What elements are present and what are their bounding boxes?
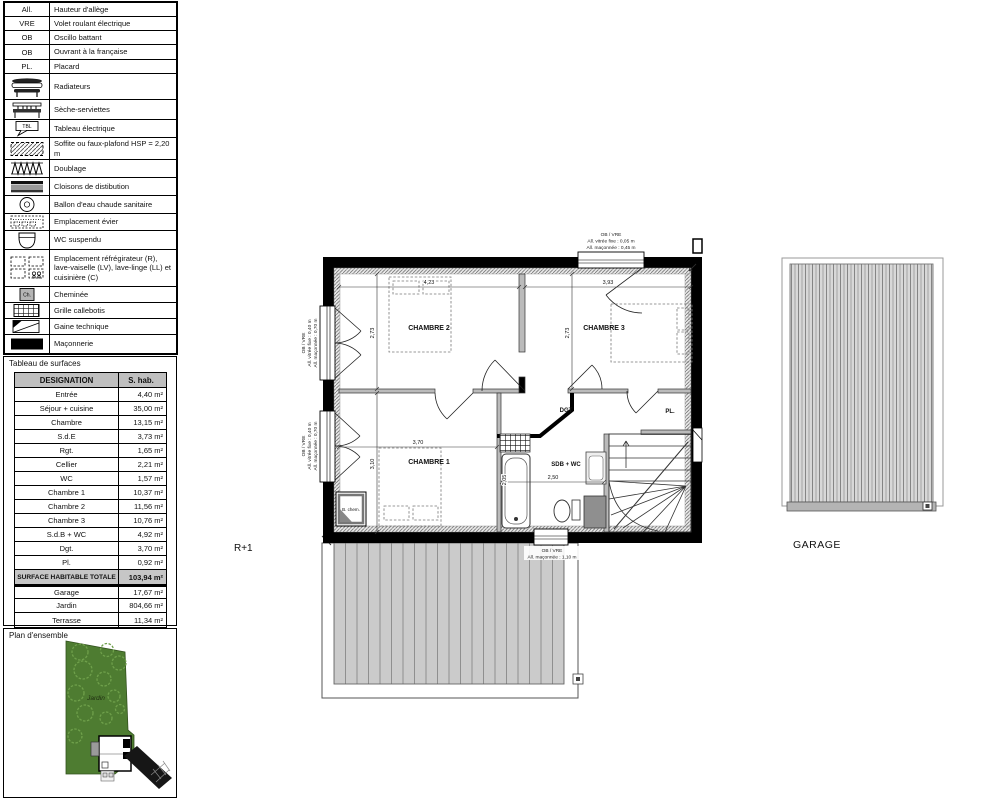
table-row: Séjour + cuisine35,00 m²: [15, 402, 166, 416]
legend-label: Oscillo battant: [50, 31, 176, 44]
svg-text:All. vitrée fixe : 0,40 m: All. vitrée fixe : 0,40 m: [307, 422, 313, 469]
legend-row: Maçonnerie: [5, 335, 176, 353]
legend-row: Ballon d'eau chaude sanitaire: [5, 196, 176, 214]
electrical-panel-icon: TBL: [8, 120, 46, 137]
dgt-thick-wall: [497, 393, 572, 436]
surface-table-panel: Tableau de surfaces DESIGNATIONS. hab. E…: [3, 356, 177, 626]
svg-text:3,10: 3,10: [370, 459, 376, 470]
site-terrace-mark: [103, 773, 107, 777]
svg-text:2,05: 2,05: [502, 475, 508, 486]
furniture-beds: [379, 277, 692, 526]
site-garage: [91, 742, 99, 756]
legend-abbr: PL.: [5, 60, 50, 73]
legend-label: Radiateurs: [50, 74, 176, 99]
legend-row: TBL Tableau électrique: [5, 120, 176, 138]
legend-row: Doublage: [5, 160, 176, 178]
room-label-dgt: DGT: [560, 408, 573, 414]
floor-grating: [500, 434, 530, 452]
table-row: Garage17,67 m²: [15, 585, 166, 599]
legend-row: Grille callebotis: [5, 303, 176, 319]
legend-row: VREVolet roulant électrique: [5, 17, 176, 31]
soffit-hatch-icon: [8, 140, 46, 158]
legend-label: Ballon d'eau chaude sanitaire: [50, 196, 176, 213]
radiator-icon: [8, 76, 46, 98]
svg-text:3,93: 3,93: [603, 280, 614, 286]
grating-icon: [8, 303, 46, 318]
legend-row: Ch. Cheminée: [5, 287, 176, 303]
legend-row: Cloisons de distibution: [5, 178, 176, 196]
svg-text:OB / VRE: OB / VRE: [301, 333, 307, 354]
towel-radiator-icon: [8, 101, 46, 119]
bathroom-fixtures: [500, 434, 606, 528]
svg-text:4,23: 4,23: [424, 280, 435, 286]
legend-row: Emplacement évier: [5, 214, 176, 231]
site-house-mark: [123, 739, 130, 748]
table-row: Dgt.3,70 m²: [15, 542, 166, 556]
svg-text:OB / VRE: OB / VRE: [542, 548, 563, 554]
svg-text:All. vitrée fixe : 0,40 m: All. vitrée fixe : 0,40 m: [307, 319, 313, 366]
level-label: R+1: [234, 543, 253, 554]
svg-text:2,73: 2,73: [370, 328, 376, 339]
svg-text:All. maçonnée : 0,45 m: All. maçonnée : 0,45 m: [586, 245, 635, 251]
chimney-flue: [693, 239, 702, 253]
garden-label: Jardin: [86, 695, 105, 702]
table-row: S.d.E3,73 m²: [15, 430, 166, 444]
bottom-window: [534, 529, 568, 545]
svg-text:All. vitrée fixe : 0,05 m: All. vitrée fixe : 0,05 m: [587, 239, 634, 245]
masonry-icon: [8, 336, 46, 352]
sink-location-icon: [8, 214, 46, 230]
legend-row: Emplacement réfrégirateur (R), lave-vais…: [5, 250, 176, 287]
site-terrace-mark: [109, 773, 113, 777]
table-row: Chambre 110,37 m²: [15, 486, 166, 500]
chimney-box: B. chem.: [336, 492, 366, 526]
legend-row: Gaine technique: [5, 319, 176, 335]
table-row: Chambre 211,56 m²: [15, 500, 166, 514]
staircase: [609, 434, 691, 532]
legend-table: All.Hauteur d'allège VREVolet roulant él…: [3, 1, 178, 355]
garage-label: GARAGE: [793, 539, 841, 551]
technical-duct: [693, 428, 702, 462]
stairs-up-arrow-icon: [623, 441, 629, 468]
table-row: Cellier2,21 m²: [15, 458, 166, 472]
legend-label: Cheminée: [50, 287, 176, 302]
technical-duct-icon: [8, 319, 46, 334]
bathtub-faucet-icon: [514, 517, 518, 521]
svg-text:3,70: 3,70: [413, 440, 424, 446]
svg-text:2,73: 2,73: [565, 328, 571, 339]
wc-bowl: [554, 500, 570, 522]
legend-label: Grille callebotis: [50, 303, 176, 318]
legend-label: Emplacement réfrégirateur (R), lave-vais…: [50, 250, 176, 286]
surface-table-header: DESIGNATIONS. hab.: [15, 373, 166, 388]
legend-row: Sèche-serviettes: [5, 100, 176, 120]
site-plan-panel: Plan d'ensemble Jardin: [3, 628, 177, 798]
table-row: Jardin804,66 m²: [15, 599, 166, 613]
table-row: Terrasse11,34 m²: [15, 613, 166, 627]
insulation-icon: [8, 160, 46, 177]
table-row: Chambre13,15 m²: [15, 416, 166, 430]
legend-abbr: OB: [5, 45, 50, 59]
legend-label: Cloisons de distibution: [50, 178, 176, 195]
legend-abbr: VRE: [5, 17, 50, 30]
legend-label: WC suspendu: [50, 231, 176, 249]
legend-row: PL.Placard: [5, 60, 176, 74]
legend-label: Placard: [50, 60, 176, 73]
legend-label: Sèche-serviettes: [50, 100, 176, 119]
room-label-chambre1: CHAMBRE 1: [408, 459, 450, 466]
legend-label: Tableau électrique: [50, 120, 176, 137]
legend-label: Hauteur d'allège: [50, 3, 176, 16]
legend-row: All.Hauteur d'allège: [5, 3, 176, 17]
legend-row: OBOscillo battant: [5, 31, 176, 45]
room-label-chambre2: CHAMBRE 2: [408, 325, 450, 332]
legend-label: Gaine technique: [50, 319, 176, 334]
legend-row: WC suspendu: [5, 231, 176, 250]
legend-row: Radiateurs: [5, 74, 176, 100]
bathtub: [502, 454, 530, 528]
wall-hung-wc-icon: [8, 231, 46, 250]
legend-label: Emplacement évier: [50, 214, 176, 230]
svg-text:OB / VRE: OB / VRE: [301, 436, 307, 457]
room-label-placard: PL.: [665, 409, 675, 415]
floor-plan-drawing: R+1 GARAGE: [180, 226, 1000, 718]
room-label-sdb: SDB + WC: [551, 462, 581, 468]
surface-total-row: SURFACE HABITABLE TOTALE103,94 m²: [15, 570, 166, 585]
garage-plan: GARAGE: [782, 258, 943, 551]
svg-text:Ch.: Ch.: [23, 293, 31, 299]
table-row: S.d.B + WC4,92 m²: [15, 528, 166, 542]
dimension-labels: 4,23 3,93 3,70 2,50 2,73 2,73 3,10 2,05: [370, 280, 613, 485]
legend-label: Doublage: [50, 160, 176, 177]
site-plan-drawing: Jardin: [4, 629, 176, 797]
table-row: WC1,57 m²: [15, 472, 166, 486]
surface-table: DESIGNATIONS. hab. Entrée4,40 m² Séjour …: [14, 372, 167, 628]
legend-abbr: OB: [5, 31, 50, 44]
chimney-box-label: B. chem.: [342, 507, 360, 512]
svg-text:OB / VRE: OB / VRE: [601, 232, 622, 238]
partition-icon: [8, 178, 46, 195]
table-row: Pl.0,92 m²: [15, 556, 166, 570]
svg-text:TBL: TBL: [22, 124, 31, 130]
water-heater-panel: [584, 496, 606, 528]
legend-row: Soffite ou faux-plafond HSP = 2,20 m: [5, 138, 176, 160]
room-label-chambre3: CHAMBRE 3: [583, 325, 625, 332]
chimney-icon: Ch.: [8, 287, 46, 302]
svg-text:All. maçonnée : 1,10 m: All. maçonnée : 1,10 m: [527, 555, 576, 561]
legend-label: Soffite ou faux-plafond HSP = 2,20 m: [50, 138, 176, 159]
table-row: Rgt.1,65 m²: [15, 444, 166, 458]
table-row: Chambre 310,76 m²: [15, 514, 166, 528]
svg-text:All. maçonnée : 0,70 m: All. maçonnée : 0,70 m: [313, 421, 319, 470]
svg-text:2,50: 2,50: [548, 475, 559, 481]
wc-tank: [572, 500, 580, 520]
legend-abbr: All.: [5, 3, 50, 16]
legend-label: Ouvrant à la française: [50, 45, 176, 59]
surface-table-title: Tableau de surfaces: [9, 359, 81, 368]
room-labels: CHAMBRE 2 CHAMBRE 3 CHAMBRE 1 SDB + WC D…: [408, 325, 675, 468]
legend-row: OBOuvrant à la française: [5, 45, 176, 60]
left-lower-window: [320, 411, 335, 482]
legend-label: Maçonnerie: [50, 335, 176, 353]
appliances-icon: [8, 255, 46, 281]
svg-text:All. maçonnée : 0,70 m: All. maçonnée : 0,70 m: [313, 318, 319, 367]
left-upper-window: [320, 306, 335, 380]
legend-label: Volet roulant électrique: [50, 17, 176, 30]
water-heater-icon: [8, 196, 46, 213]
table-row: Entrée4,40 m²: [15, 388, 166, 402]
